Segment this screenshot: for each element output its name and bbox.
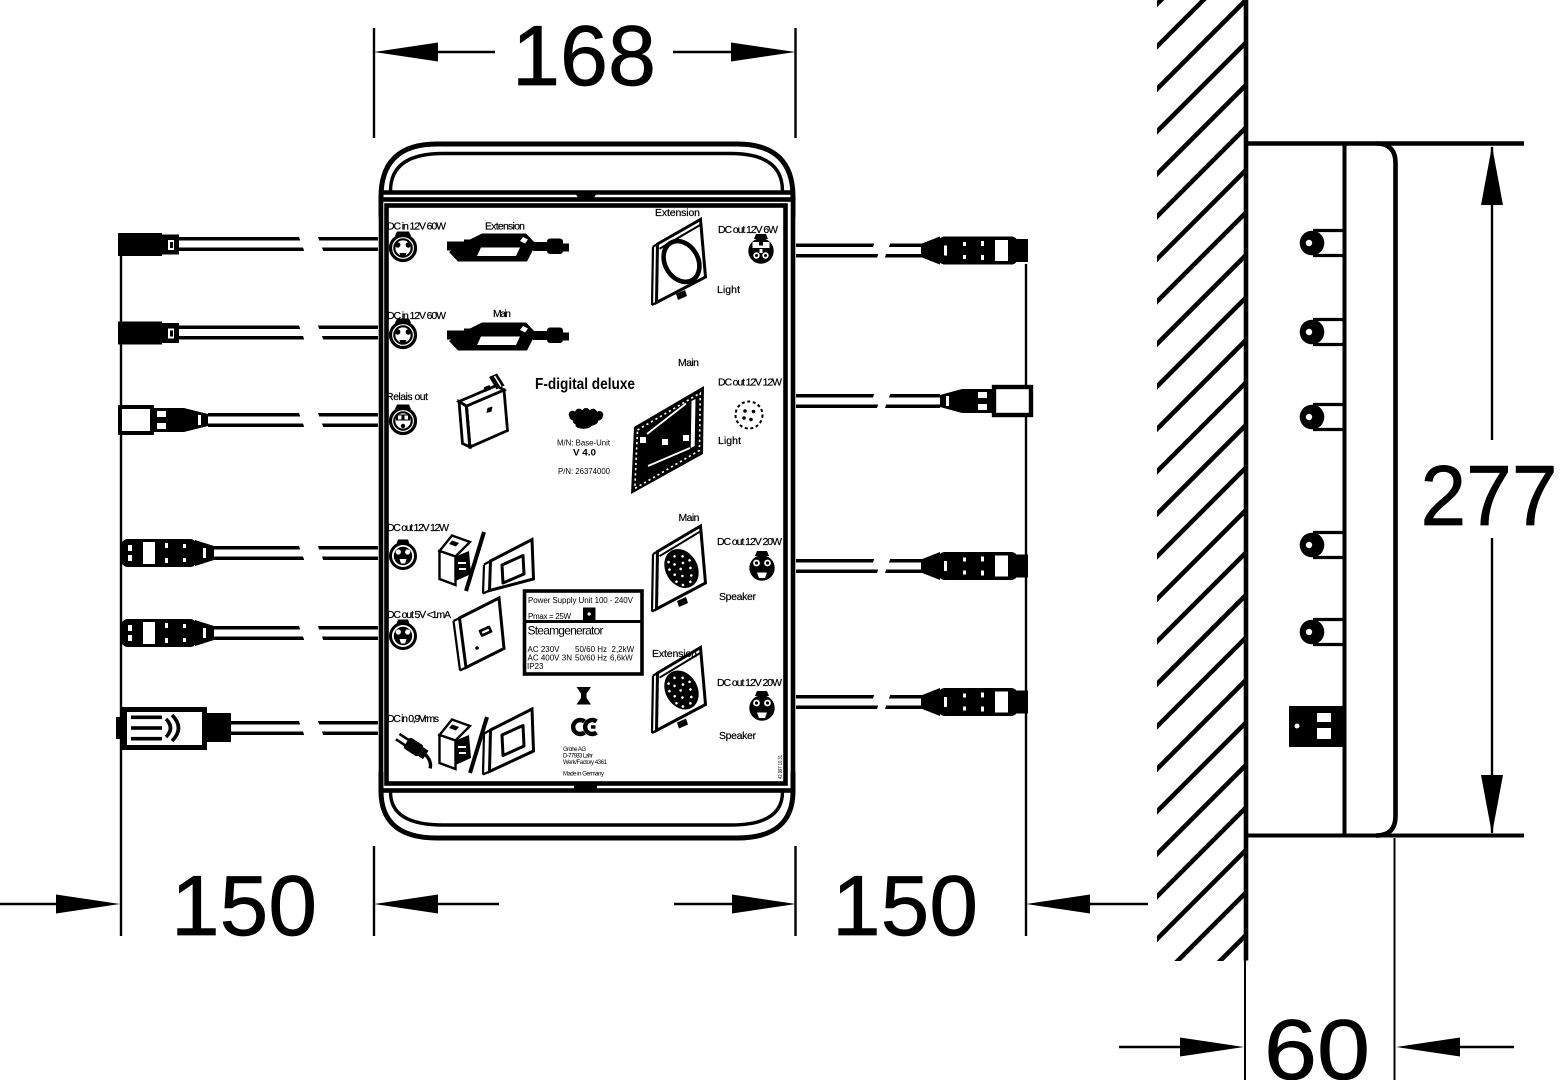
svg-text:Extension: Extension [652, 648, 697, 660]
svg-text:DC out 12V 6W: DC out 12V 6W [718, 224, 778, 236]
svg-text:DC out 12V 20W: DC out 12V 20W [717, 536, 782, 548]
svg-text:Speaker: Speaker [719, 730, 757, 742]
svg-text:Main: Main [679, 512, 700, 524]
svg-text:150: 150 [832, 859, 978, 954]
svg-text:Light: Light [717, 284, 740, 296]
svg-text:DC in 12V 60W: DC in 12V 60W [387, 221, 446, 233]
svg-text:DC in 0,9Vrms: DC in 0,9Vrms [387, 713, 439, 725]
svg-text:DC out 12V 12W: DC out 12V 12W [387, 522, 449, 534]
svg-text:Relais out: Relais out [386, 391, 428, 403]
svg-text:Main: Main [493, 308, 511, 320]
svg-text:DC out 12V 20W: DC out 12V 20W [717, 677, 782, 689]
svg-text:168: 168 [512, 9, 656, 104]
svg-text:F-digital deluxe: F-digital deluxe [535, 376, 635, 393]
svg-text:50/60 Hz: 50/60 Hz [575, 654, 607, 663]
svg-text:Main: Main [678, 357, 699, 369]
svg-text:V 4.0: V 4.0 [573, 448, 596, 459]
svg-text:D-77933 Lahr: D-77933 Lahr [563, 754, 593, 760]
svg-text:DC out 12V 12W: DC out 12V 12W [718, 377, 782, 389]
svg-text:Speaker: Speaker [719, 591, 757, 603]
svg-text:DC out 5V <1mA: DC out 5V <1mA [387, 609, 451, 621]
svg-text:DC in 12V 60W: DC in 12V 60W [387, 310, 446, 322]
svg-text:M/N: Base-Unit: M/N: Base-Unit [557, 439, 611, 448]
svg-text:Power Supply Unit 100 - 240V: Power Supply Unit 100 - 240V [528, 596, 634, 605]
svg-text:Light: Light [718, 435, 741, 447]
svg-text:60: 60 [1264, 1003, 1370, 1080]
svg-text:Extension: Extension [655, 207, 700, 219]
svg-text:P/N: 26374000: P/N: 26374000 [558, 467, 611, 476]
svg-text:Extension: Extension [485, 221, 525, 233]
svg-text:Pmax = 25W: Pmax = 25W [528, 612, 571, 621]
svg-text:IP23: IP23 [527, 662, 544, 671]
svg-text:6,6kW: 6,6kW [610, 654, 633, 663]
svg-text:277: 277 [1421, 449, 1558, 544]
svg-text:Steamgenerator: Steamgenerator [528, 624, 604, 638]
svg-text:Werk/Factory 4361: Werk/Factory 4361 [563, 760, 608, 766]
svg-text:Grohe AG: Grohe AG [563, 747, 586, 753]
svg-text:150: 150 [171, 859, 317, 954]
svg-text:Made in Germany: Made in Germany [563, 772, 604, 778]
svg-text:42 997 10.31: 42 997 10.31 [778, 755, 784, 779]
